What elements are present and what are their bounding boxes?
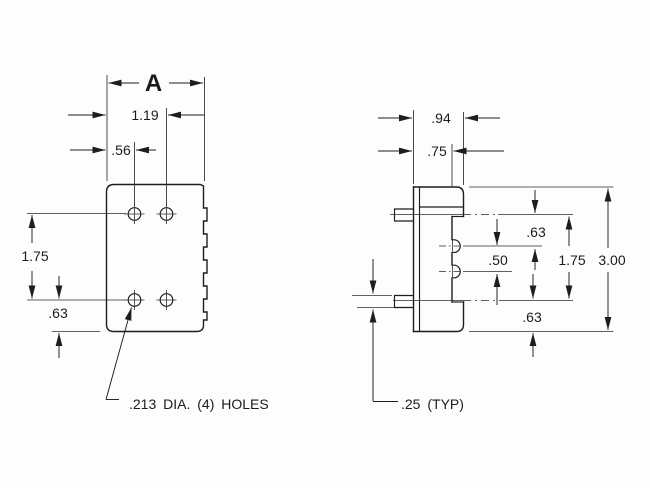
mounting-ear-top — [395, 209, 414, 221]
side-view-bottom-cap — [414, 302, 464, 332]
dim-1-75-right-label: 1.75 — [558, 252, 585, 268]
dim-3-00-label: 3.00 — [598, 252, 625, 268]
dim-1-75-left-label: 1.75 — [21, 248, 48, 264]
hole-top-left — [125, 204, 145, 224]
dim-a-label: A — [145, 70, 163, 97]
side-view-top-cap — [414, 187, 464, 217]
hole-bottom-right — [157, 290, 177, 310]
side-view: .94 .75 .63 .50 1.75 3.00 .63 .25 (TYP) — [352, 110, 626, 412]
holes-leader-line — [106, 308, 132, 400]
engineering-drawing-page: A 1.19 .56 1.75 .63 .213 DIA. (4) HOLES — [0, 0, 650, 488]
hole-bottom-left — [125, 290, 145, 310]
front-view: A 1.19 .56 1.75 .63 .213 DIA. (4) HOLES — [21, 70, 268, 412]
dim-50-label: .50 — [488, 252, 508, 268]
dim-56-label: .56 — [111, 142, 131, 158]
dim-63-left-label: .63 — [48, 305, 68, 321]
mounting-ear-bottom — [395, 296, 414, 308]
dim-94-label: .94 — [431, 110, 451, 126]
front-view-outline — [107, 185, 208, 332]
dim-75-label: .75 — [427, 143, 447, 159]
hole-top-right — [157, 204, 177, 224]
dim-63-bottom-label: .63 — [522, 309, 542, 325]
holes-note: .213 DIA. (4) HOLES — [129, 396, 269, 412]
dim-25-label: .25 (TYP) — [401, 396, 464, 412]
dim-1-19-label: 1.19 — [131, 107, 158, 123]
engineering-drawing: A 1.19 .56 1.75 .63 .213 DIA. (4) HOLES — [0, 0, 650, 488]
dim-63-top-label: .63 — [526, 224, 546, 240]
